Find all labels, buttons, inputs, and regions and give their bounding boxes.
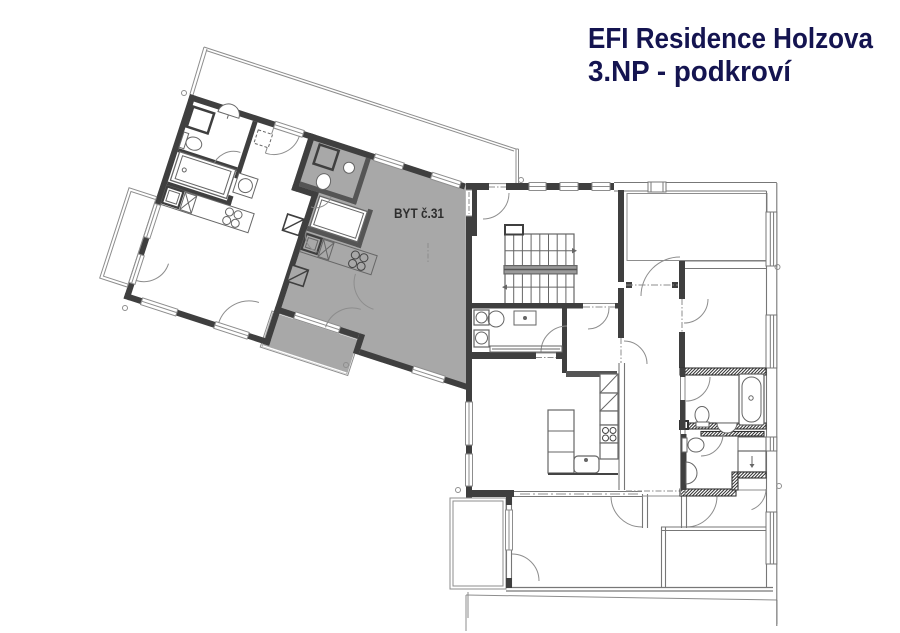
svg-text:3.NP - podkroví: 3.NP - podkroví (588, 56, 792, 88)
svg-text:EFI Residence Holzova: EFI Residence Holzova (588, 23, 874, 55)
svg-text:BYT č.31: BYT č.31 (394, 205, 444, 221)
